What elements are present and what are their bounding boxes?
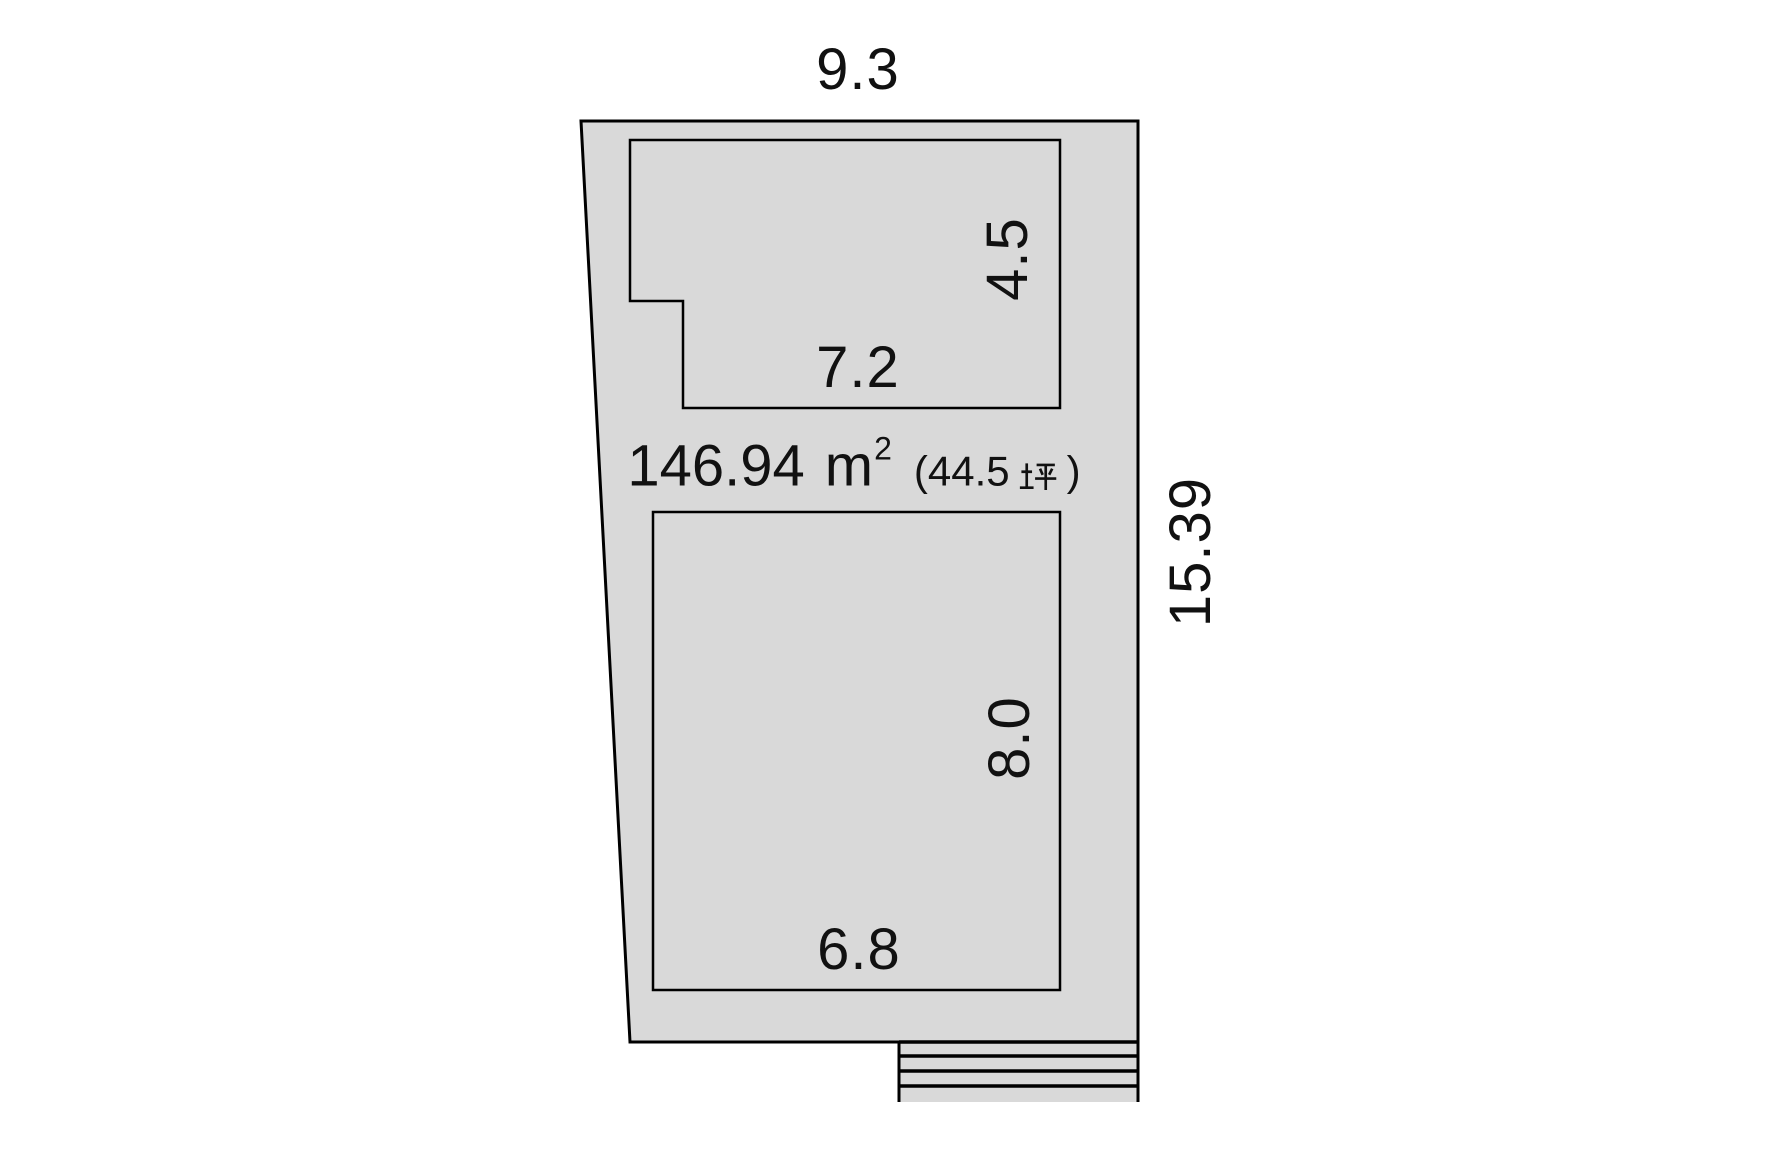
area-value: 146.94 [627, 438, 804, 496]
land-plot-diagram: 9.3 7.2 6.8 4.5 8.0 15.39 146.94 m2 (44.… [0, 0, 1789, 1153]
area-unit: m2 [825, 433, 892, 496]
building-top-width-label: 7.2 [816, 339, 900, 397]
building-top-depth-label: 4.5 [979, 217, 1037, 301]
area-tsubo-suffix: ) [1067, 451, 1081, 493]
area-tsubo: (44.5 坪 ) [914, 451, 1081, 493]
building-bottom-depth-label: 8.0 [981, 696, 1039, 780]
area-tsubo-prefix: (44.5 [914, 451, 1010, 493]
lot-top-width-label: 9.3 [816, 41, 900, 99]
area-unit-superscript: 2 [874, 431, 892, 467]
tsubo-kanji-glyph [1019, 454, 1057, 492]
lot-area-label: 146.94 m2 (44.5 坪 ) [627, 433, 1080, 496]
building-bottom-width-label: 6.8 [817, 921, 901, 979]
lot-right-height-label: 15.39 [1162, 477, 1220, 627]
